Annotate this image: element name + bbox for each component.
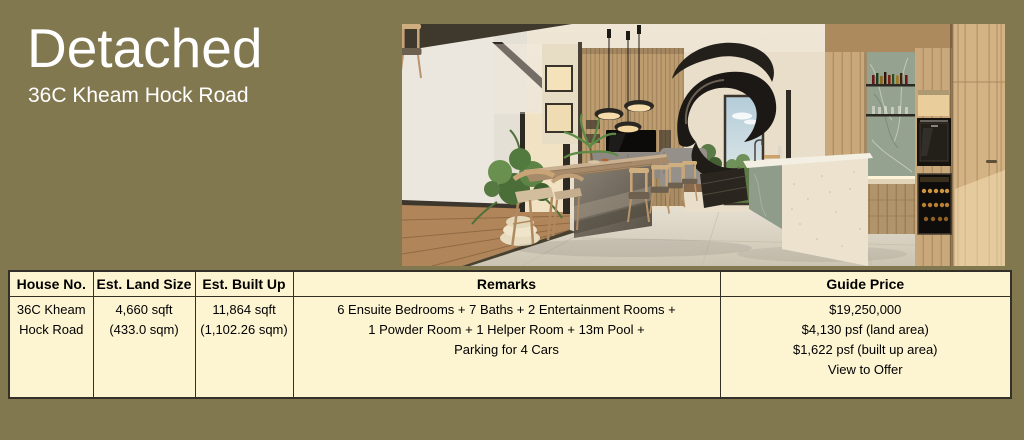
cell-est-land-size: 4,660 sqft (433.0 sqm)	[93, 296, 195, 398]
listing-table: House No. Est. Land Size Est. Built Up R…	[8, 270, 1012, 399]
cell-remarks: 6 Ensuite Bedrooms + 7 Baths + 2 Enterta…	[293, 296, 720, 398]
table-row: 36C Kheam Hock Road 4,660 sqft (433.0 sq…	[9, 296, 1011, 398]
cell-est-built-up: 11,864 sqft (1,102.26 sqm)	[195, 296, 293, 398]
table-header-row: House No. Est. Land Size Est. Built Up R…	[9, 271, 1011, 296]
header-remarks: Remarks	[293, 271, 720, 296]
header-est-land-size: Est. Land Size	[93, 271, 195, 296]
page-subtitle: 36C Kheam Hock Road	[28, 84, 249, 108]
page-title: Detached	[27, 20, 262, 78]
wine-fridge	[918, 174, 951, 234]
wood-door	[950, 24, 1005, 266]
header-guide-price: Guide Price	[720, 271, 1011, 296]
header-est-built-up: Est. Built Up	[195, 271, 293, 296]
interior-render	[402, 24, 1005, 266]
cell-guide-price: $19,250,000 $4,130 psf (land area) $1,62…	[720, 296, 1011, 398]
header-house-no: House No.	[9, 271, 93, 296]
cell-house-no: 36C Kheam Hock Road	[9, 296, 93, 398]
property-photo	[402, 24, 1005, 266]
door-handle	[986, 160, 997, 163]
